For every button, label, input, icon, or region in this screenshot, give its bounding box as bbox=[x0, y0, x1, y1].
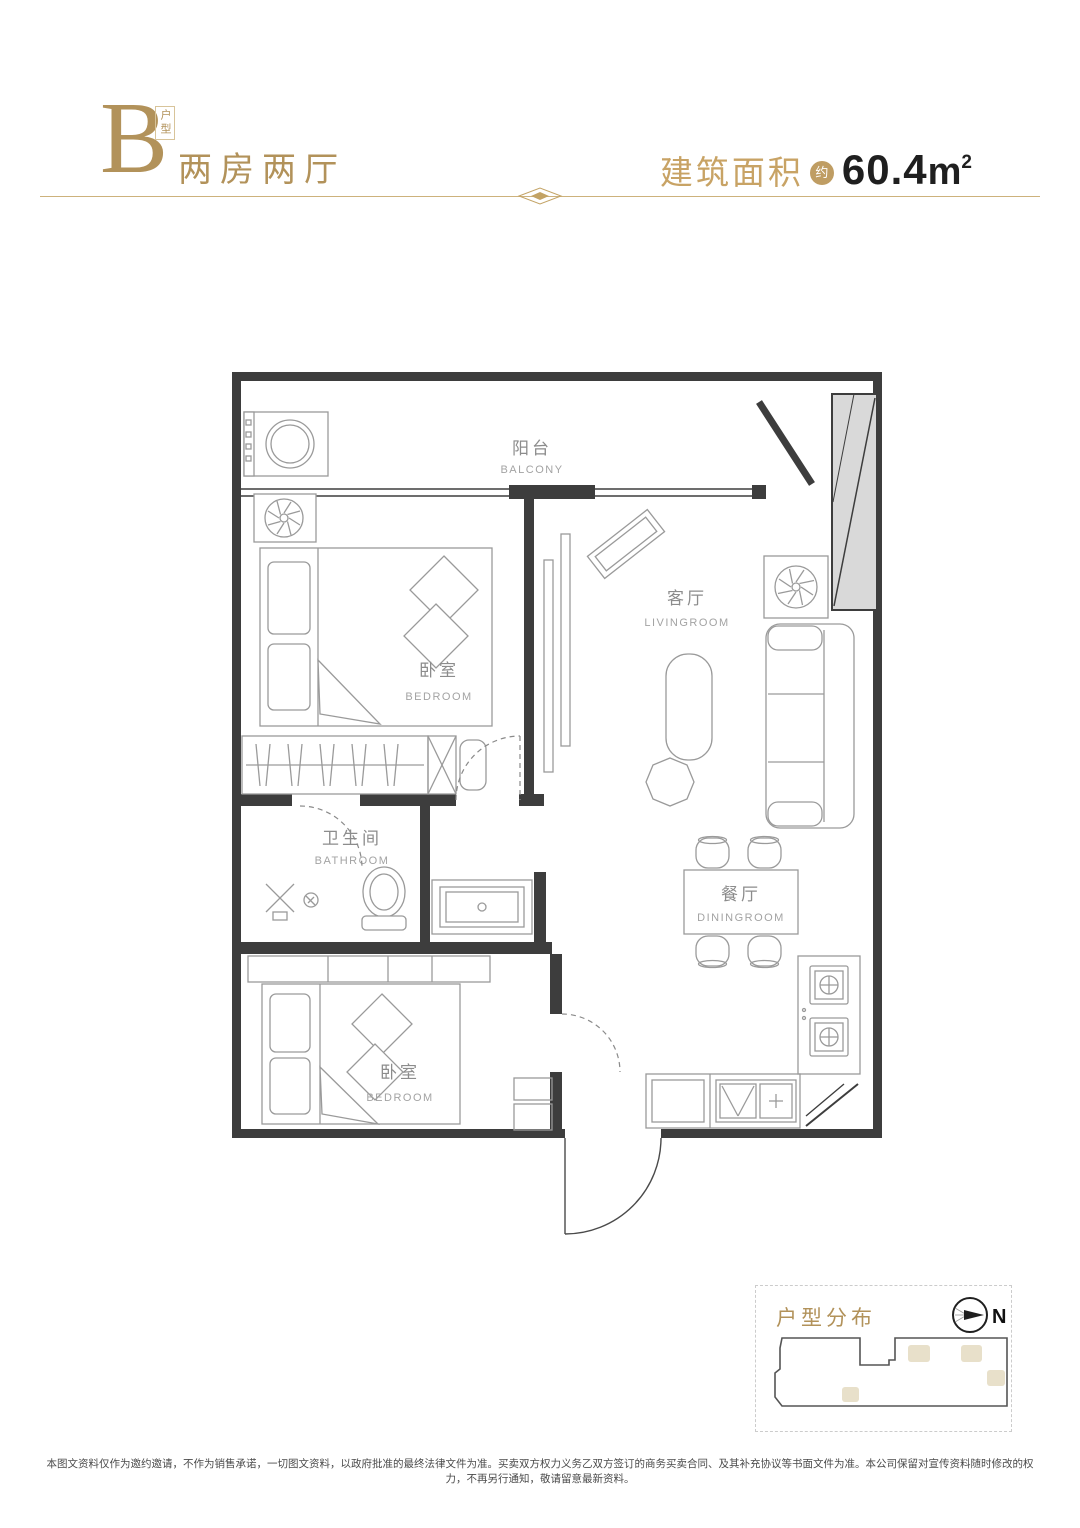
compass-icon bbox=[953, 1298, 987, 1332]
wall-break-mark bbox=[806, 1084, 858, 1126]
unit-type-tag: 户型 bbox=[155, 106, 175, 140]
floorplan: 阳台 BALCONY 卧室 BEDROOM bbox=[232, 372, 882, 1252]
bedroom-top-label-en: BEDROOM bbox=[405, 691, 472, 703]
bedroom-top-label-zh: 卧室 bbox=[419, 661, 459, 680]
flyer-page: B 户型 两房两厅 建筑面积 约 60.4 m2 bbox=[0, 0, 1080, 1528]
pillow bbox=[270, 1058, 310, 1114]
entry-door-arc bbox=[565, 1138, 661, 1234]
disclaimer-text: 本图文资料仅作为邀约邀请，不作为销售承诺，一切图文资料，以政府批准的最终法律文件… bbox=[40, 1456, 1040, 1486]
bathroom-label-en: BATHROOM bbox=[315, 855, 390, 867]
bedroom-top: 卧室 BEDROOM bbox=[242, 494, 520, 800]
area-label: 建筑面积 bbox=[660, 146, 804, 194]
cushion bbox=[352, 994, 412, 1054]
wardrobe bbox=[242, 736, 486, 794]
layout-name: 两房两厅 bbox=[178, 142, 346, 191]
distribution-map: N bbox=[756, 1286, 1011, 1431]
area-value: 60.4 bbox=[842, 146, 928, 194]
vanity-sink bbox=[432, 880, 532, 934]
bedroom-top-door-arc bbox=[456, 736, 520, 800]
balcony-window bbox=[241, 485, 766, 499]
toilet-icon bbox=[362, 867, 406, 930]
lounge-chair bbox=[666, 654, 712, 760]
fan-coil-icon bbox=[775, 566, 817, 608]
living-label-en: LIVINGROOM bbox=[644, 617, 729, 629]
sliding-doors bbox=[544, 534, 570, 772]
cushion bbox=[404, 604, 468, 668]
living-label-zh: 客厅 bbox=[667, 589, 707, 608]
bathroom: 卫生间 BATHROOM bbox=[266, 806, 406, 930]
bedroom-bottom-label-en: BEDROOM bbox=[366, 1092, 433, 1104]
pillow bbox=[268, 562, 310, 634]
floor-drain-icon bbox=[304, 893, 318, 907]
tv-icon bbox=[587, 510, 664, 579]
balcony-label-en: BALCONY bbox=[500, 464, 563, 476]
entry-cabinet bbox=[514, 1078, 552, 1100]
side-table bbox=[646, 758, 694, 806]
closet bbox=[248, 956, 490, 982]
balcony-diagonal-wall bbox=[759, 402, 812, 484]
balcony-label-zh: 阳台 bbox=[512, 439, 552, 458]
dining-room: 餐厅 DININGROOM bbox=[684, 837, 798, 968]
bathroom-label-zh: 卫生间 bbox=[322, 829, 382, 848]
kitchen bbox=[646, 956, 860, 1128]
living-room: 客厅 LIVINGROOM bbox=[587, 510, 854, 828]
hall-door-arc bbox=[562, 1014, 620, 1072]
sofa bbox=[766, 624, 854, 828]
distribution-panel: 户型分布 N bbox=[755, 1285, 1012, 1432]
bedroom-bottom-label-zh: 卧室 bbox=[380, 1063, 420, 1082]
kitchen-sink-icon bbox=[716, 1080, 796, 1122]
shower-icon bbox=[266, 884, 294, 920]
diamond-ornament-icon bbox=[517, 186, 563, 206]
north-label: N bbox=[992, 1306, 1006, 1328]
entry bbox=[514, 1014, 661, 1234]
area-unit: m2 bbox=[928, 151, 972, 194]
pillow bbox=[270, 994, 310, 1052]
balcony: 阳台 BALCONY bbox=[244, 412, 564, 476]
approx-badge: 约 bbox=[810, 161, 834, 185]
shaft-area bbox=[832, 394, 877, 610]
dining-label-zh: 餐厅 bbox=[721, 885, 761, 904]
area-block: 建筑面积 约 60.4 m2 bbox=[660, 146, 972, 194]
bedroom-bottom: 卧室 BEDROOM bbox=[248, 956, 490, 1124]
pillow bbox=[268, 644, 310, 710]
dining-label-en: DININGROOM bbox=[697, 912, 785, 924]
entry-cabinet bbox=[514, 1104, 552, 1130]
gas-stove-icon bbox=[803, 966, 849, 1056]
